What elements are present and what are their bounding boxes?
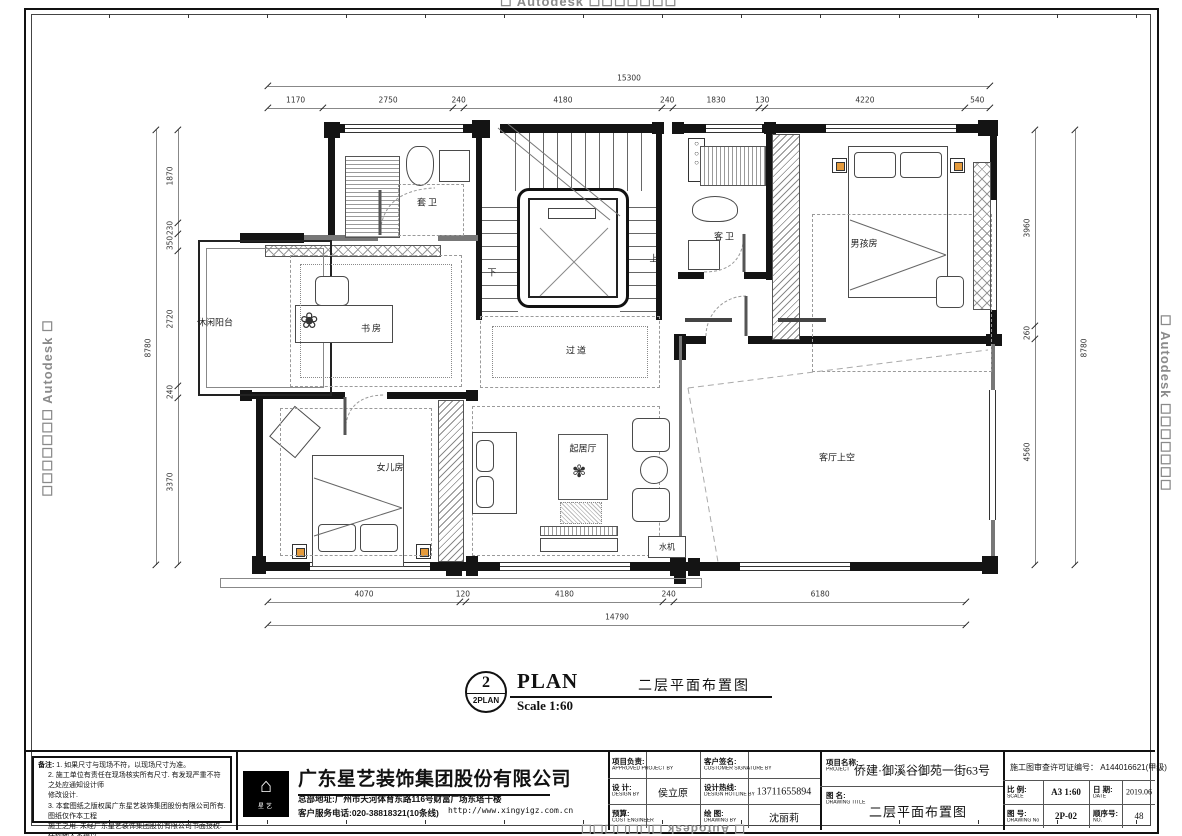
- dimension-tick: [152, 561, 159, 568]
- dimension-tick: [174, 561, 181, 568]
- field-label-scale-en: SCALE: [1007, 794, 1024, 800]
- field-value-hotline: 13711655894: [757, 787, 812, 798]
- autodesk-watermark-left: ☐☐☐☐☐☐☐ Autodesk ☐: [40, 298, 56, 518]
- dimension-label: 120: [456, 590, 470, 599]
- dimension-label: 1870: [166, 167, 175, 186]
- dimension-label: 8780: [144, 338, 153, 357]
- dimension-label: 240: [660, 96, 674, 105]
- plan-title-cn: 二层平面布置图: [638, 675, 750, 695]
- grid-line: [646, 752, 647, 828]
- dimension-label: 540: [970, 96, 984, 105]
- field-label-seq-en: NO.: [1093, 818, 1102, 824]
- note-line: 3. 本套图纸之版权属广东星艺装饰集团股份有限公司所有. 图纸仅作本工程: [38, 802, 226, 822]
- note-line: 施工之用. 未经广东星艺装饰集团股份有限公司书面授权. 任何他人不得以: [38, 822, 226, 836]
- dimension-label: 4180: [553, 96, 572, 105]
- dimension-label: 350: [166, 236, 175, 250]
- dimension-label: 1830: [707, 96, 726, 105]
- dimension-label: 3960: [1023, 219, 1032, 238]
- dimension-label: 130: [755, 96, 769, 105]
- autodesk-logo-text: Autodesk: [517, 0, 584, 9]
- dimension-label: 230: [166, 221, 175, 235]
- plan-title-word: PLAN: [517, 669, 578, 694]
- note-line: 2. 施工单位有责任在现场核实所有尺寸. 有发现严重不符之处应通知设计师: [38, 771, 226, 791]
- drawing-no-value: 2P-02: [1055, 811, 1077, 821]
- dimension-label: 1170: [286, 96, 305, 105]
- scale-value: A3 1:60: [1051, 787, 1081, 797]
- grid-line: [608, 804, 820, 805]
- dimension-label: 4560: [1023, 442, 1032, 461]
- plan-title-block: 2 2PLAN PLAN Scale 1:60 二层平面布置图: [455, 665, 785, 720]
- dimension-layer: 1530011702750240418024018301304220540407…: [140, 50, 1152, 675]
- field-label-design-en: DESIGN BY: [612, 792, 640, 798]
- autodesk-logo-text: Autodesk: [1158, 331, 1173, 398]
- seq-value: 48: [1135, 811, 1144, 821]
- note-line: 1. 如果尺寸与现场不符，以现场尺寸为准。: [56, 762, 190, 769]
- grid-line: [700, 752, 701, 828]
- titleband-divider: [608, 750, 610, 830]
- field-label-project-en: PROJECT: [826, 767, 850, 773]
- dimension-label: 4180: [555, 590, 574, 599]
- company-name: 广东星艺装饰集团股份有限公司: [298, 764, 550, 796]
- titleband-divider: [236, 750, 238, 830]
- watermark-box: ☐: [500, 0, 513, 9]
- company-website: http://www.xingyigz.com.cn: [448, 806, 573, 815]
- dimension-tick: [1031, 561, 1038, 568]
- dimension-label: 8780: [1080, 338, 1089, 357]
- dimension-tick: [986, 104, 993, 111]
- plan-number: 2: [467, 673, 505, 694]
- dimension-label: 4070: [354, 590, 373, 599]
- dimension-label: 14790: [605, 613, 629, 622]
- company-logo: ⌂ 星艺: [243, 771, 289, 817]
- dimension-line: [1035, 130, 1036, 565]
- field-value-design: 侯立原: [658, 785, 688, 800]
- plan-scale: Scale 1:60: [517, 698, 573, 714]
- plan-number-caption: 2PLAN: [467, 694, 505, 708]
- permit-number: 施工图审查许可证编号： A144016621(甲级): [1010, 762, 1167, 773]
- field-label-hotline-en: DESIGN HOTLINE BY: [704, 792, 755, 798]
- company-logo-caption: 星艺: [243, 801, 289, 810]
- dimension-line: [1075, 130, 1076, 565]
- grid-line: [748, 752, 749, 828]
- field-label-cost-en: COST ENGINEER: [612, 818, 654, 824]
- dimension-tick: [986, 82, 993, 89]
- titleband-divider: [820, 750, 822, 830]
- company-phone: 客户服务电话:020-38818321(10条线): [298, 807, 439, 819]
- notes-label: 备注:: [38, 762, 54, 769]
- autodesk-watermark-right: ☐ Autodesk ☐☐☐☐☐☐☐: [1157, 293, 1173, 513]
- grid-line: [1003, 780, 1155, 781]
- dimension-line: [268, 86, 990, 87]
- watermark-boxes: ☐☐☐☐☐☐☐: [1158, 403, 1173, 492]
- drawing-sheet: ☐ Autodesk ☐☐☐☐☐☐☐ ☐☐☐☐☐☐☐ Autodesk ☐ ☐ …: [0, 0, 1182, 836]
- floor-plan: ○○○ ❀: [140, 50, 1152, 675]
- frame-ruler-top: [31, 14, 1149, 18]
- dimension-line: [156, 130, 157, 565]
- dimension-line: [178, 130, 179, 565]
- note-line: 修改设计.: [38, 791, 226, 801]
- dimension-line: [268, 625, 966, 626]
- autodesk-logo-text: Autodesk: [667, 822, 730, 836]
- grid-line: [1003, 804, 1155, 805]
- house-icon: ⌂: [243, 771, 289, 801]
- watermark-boxes: ☐☐☐☐☐☐☐: [589, 0, 678, 9]
- dimension-label: 3370: [166, 472, 175, 491]
- company-address: 总部地址:广州市天河体育东路116号财富广场东塔十楼: [298, 793, 502, 805]
- dimension-tick: [1071, 561, 1078, 568]
- project-name: 侨建·御溪谷御苑一街63号: [854, 762, 990, 779]
- titleband-divider: [1003, 750, 1005, 830]
- dimension-label: 15300: [617, 74, 641, 83]
- plan-title-rule: [510, 696, 772, 698]
- dimension-line: [268, 602, 966, 603]
- titleband-top-rule: [24, 750, 1155, 752]
- dimension-label: 2750: [379, 96, 398, 105]
- dimension-label: 240: [451, 96, 465, 105]
- grid-line: [1089, 780, 1090, 828]
- grid-line: [608, 778, 820, 779]
- dimension-label: 240: [166, 385, 175, 399]
- watermark-box: ☐: [1158, 314, 1173, 327]
- grid-line: [1122, 780, 1123, 828]
- watermark-boxes: ☐☐☐☐☐☐☐: [40, 408, 55, 497]
- plan-number-bubble: 2 2PLAN: [465, 671, 507, 713]
- dimension-label: 2720: [166, 309, 175, 328]
- watermark-box: ☐: [733, 822, 745, 836]
- autodesk-logo-text: Autodesk: [40, 337, 55, 404]
- watermark-boxes: ☐☐☐☐☐☐☐: [580, 822, 662, 836]
- autodesk-watermark-top: ☐ Autodesk ☐☐☐☐☐☐☐: [500, 0, 677, 10]
- date-value: 2019.06: [1126, 788, 1152, 797]
- field-label-drawing-en: DRAWING BY: [704, 818, 736, 824]
- watermark-box: ☐: [40, 319, 55, 332]
- grid-line: [820, 786, 1003, 787]
- field-label-approved-en: APPROVED PROJECT BY: [612, 766, 673, 772]
- notes-box: 备注: 1. 如果尺寸与现场不符，以现场尺寸为准。 2. 施工单位有责任在现场核…: [32, 756, 232, 823]
- dimension-label: 6180: [811, 590, 830, 599]
- field-label-customer-en: CUSTOMER SIGNATURE BY: [704, 766, 744, 772]
- field-label-drawing-no-en: DRAWING No: [1007, 818, 1039, 824]
- dimension-label: 260: [1023, 325, 1032, 339]
- dimension-label: 240: [662, 590, 676, 599]
- field-label-date-en: DATE: [1093, 794, 1106, 800]
- dimension-line: [268, 108, 990, 109]
- dimension-tick: [962, 598, 969, 605]
- field-value-drawing: 沈丽莉: [769, 810, 799, 825]
- dimension-label: 4220: [855, 96, 874, 105]
- dimension-tick: [962, 621, 969, 628]
- autodesk-watermark-bottom: ☐ Autodesk ☐☐☐☐☐☐☐: [580, 822, 745, 836]
- grid-line: [1043, 780, 1044, 828]
- drawing-title: 二层平面布置图: [869, 802, 967, 821]
- field-label-title-en: DRAWING TITLE: [826, 800, 865, 806]
